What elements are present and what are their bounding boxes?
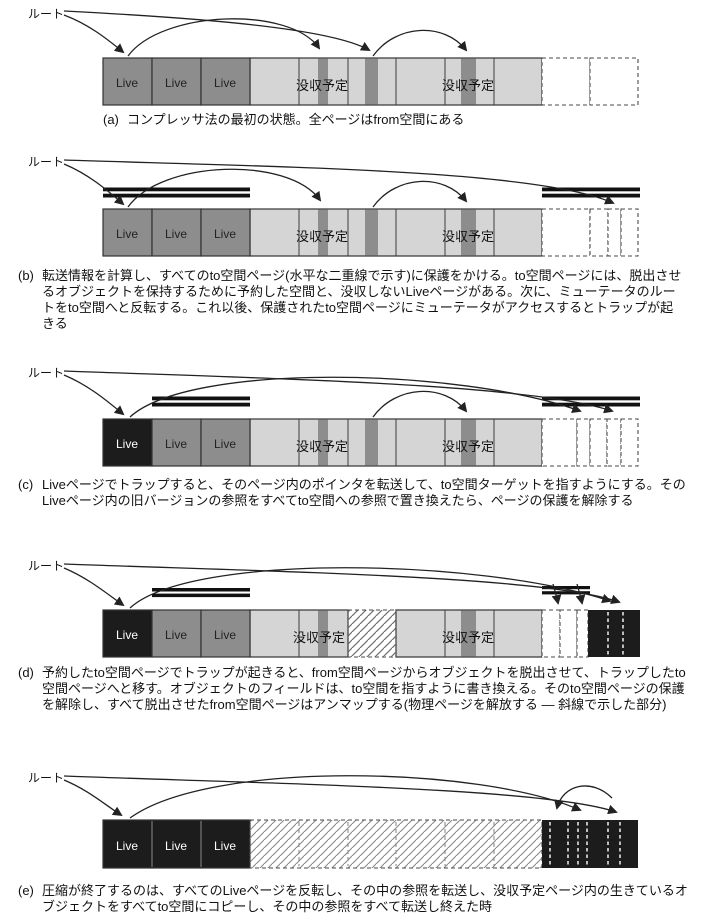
object-pointer-arrow [130, 776, 580, 818]
reserved-page-cell [542, 610, 560, 657]
caption-b-text: 転送情報を計算し、すべてのto空間ページ(水平な二重線で示す)に保護をかける。t… [42, 268, 684, 332]
reserved-page-cell [560, 610, 577, 657]
pointer-arrows [64, 564, 619, 608]
object-pointer-arrow [128, 19, 319, 56]
root-pointer-arrow [64, 164, 123, 204]
diagram-d: Live Live Live 没収予定 没収予定 ルート [0, 553, 703, 663]
caption-c-text: Liveページでトラップすると、そのページ内のポインタを転送して、to空間ターゲ… [42, 477, 690, 509]
object-pointer-arrow [373, 391, 466, 417]
condemned-label: 没収予定 [293, 630, 345, 645]
live-page-label: Live [214, 839, 236, 853]
diagram-c: Live Live Live 没収予定 没収予定 ルート [0, 360, 703, 470]
reserved-page-cell [577, 419, 590, 466]
live-page-label: Live [116, 839, 138, 853]
root-label: ルート [28, 366, 64, 380]
live-object-stripe [365, 210, 378, 256]
live-page-label: Live [165, 839, 187, 853]
caption-e: (e) 圧縮が終了するのは、すべてのLiveページを反転し、その中の参照を転送し… [18, 883, 690, 915]
root-label: ルート [28, 155, 64, 169]
live-page-label: Live [165, 437, 187, 451]
to-space-region-cell [542, 820, 638, 868]
caption-c: (c) Liveページでトラップすると、そのページ内のポインタを転送して、to空… [18, 477, 690, 509]
reserved-page-cell [621, 209, 638, 256]
reserved-page-cell [590, 419, 607, 466]
root-label: ルート [28, 771, 64, 785]
compressor-algorithm-figure: Live Live Live 没収予定 没収予定 ルート (a) コンプレッサ法… [0, 0, 703, 922]
root-pointer-arrow [64, 780, 121, 815]
condemned-label: 没収予定 [296, 78, 348, 93]
pointer-arrows [64, 11, 466, 56]
live-page-label: Live [116, 437, 138, 451]
root-pointer-arrow [64, 11, 369, 50]
heap-bar: Live Live Live 没収予定 没収予定 [103, 209, 638, 256]
condemned-label: 没収予定 [296, 439, 348, 454]
caption-b: (b) 転送情報を計算し、すべてのto空間ページ(水平な二重線で示す)に保護をか… [18, 268, 684, 332]
root-pointer-arrow [64, 15, 123, 52]
live-object-stripe [365, 420, 378, 466]
diagram-e: Live Live Live ルート [0, 762, 703, 872]
diagram-b: Live Live Live 没収予定 没収予定 ルート [0, 150, 703, 262]
condemned-label: 没収予定 [442, 229, 494, 244]
reserved-page-cell [577, 610, 588, 657]
heap-bar: Live Live Live 没収予定 没収予定 [103, 419, 638, 466]
root-pointer-arrow [64, 776, 616, 812]
root-label: ルート [28, 7, 64, 21]
reserved-page-cell [542, 58, 590, 105]
caption-b-tag: (b) [18, 268, 42, 332]
unmapped-page-cell [348, 610, 396, 657]
object-pointer-arrow [373, 30, 466, 56]
caption-d: (d) 予約したto空間ページでトラップが起きると、from空間ページからオブジ… [18, 665, 690, 713]
object-pointer-arrow [130, 568, 610, 608]
diagram-a: Live Live Live 没収予定 没収予定 ルート [0, 0, 703, 110]
reserved-page-cell [542, 209, 590, 256]
caption-c-tag: (c) [18, 477, 42, 509]
live-object-stripe [365, 59, 378, 105]
caption-a-tag: (a) [103, 112, 127, 128]
caption-e-text: 圧縮が終了するのは、すべてのLiveページを反転し、その中の参照を転送し、没収予… [42, 883, 690, 915]
caption-a: (a) コンプレッサ法の最初の状態。全ページはfrom空間にある [103, 112, 663, 128]
to-space-page-cell [588, 610, 640, 657]
caption-d-tag: (d) [18, 665, 42, 713]
live-page-label: Live [116, 628, 138, 642]
caption-d-text: 予約したto空間ページでトラップが起きると、from空間ページからオブジェクトを… [42, 665, 690, 713]
live-page-label: Live [214, 76, 236, 90]
object-pointer-arrow [373, 181, 466, 207]
pointer-arrows [64, 371, 612, 417]
heap-bar: Live Live Live 没収予定 没収予定 [103, 58, 638, 105]
reserved-page-cell [621, 419, 638, 466]
live-page-label: Live [214, 628, 236, 642]
reserved-page-cell [608, 209, 621, 256]
live-page-label: Live [116, 227, 138, 241]
reserved-page-cell [607, 419, 621, 466]
root-pointer-arrow [64, 375, 123, 414]
live-page-label: Live [214, 437, 236, 451]
pointer-arrows [64, 160, 613, 207]
live-page-label: Live [165, 227, 187, 241]
condemned-label: 没収予定 [442, 630, 494, 645]
root-label: ルート [28, 559, 64, 573]
reserved-page-cell [542, 419, 577, 466]
root-pointer-arrow [64, 568, 123, 605]
live-page-label: Live [116, 76, 138, 90]
caption-a-text: コンプレッサ法の最初の状態。全ページはfrom空間にある [127, 112, 663, 128]
condemned-label: 没収予定 [296, 229, 348, 244]
reserved-page-cell [590, 58, 638, 105]
pointer-arrows [64, 776, 616, 818]
heap-bar: Live Live Live [103, 820, 638, 868]
condemned-label: 没収予定 [442, 439, 494, 454]
live-page-label: Live [165, 628, 187, 642]
live-page-label: Live [165, 76, 187, 90]
caption-e-tag: (e) [18, 883, 42, 915]
live-page-label: Live [214, 227, 236, 241]
to-space-protection-double-line [152, 586, 590, 597]
heap-bar: Live Live Live 没収予定 没収予定 [103, 610, 640, 657]
condemned-label: 没収予定 [442, 78, 494, 93]
reserved-page-cell [590, 209, 608, 256]
